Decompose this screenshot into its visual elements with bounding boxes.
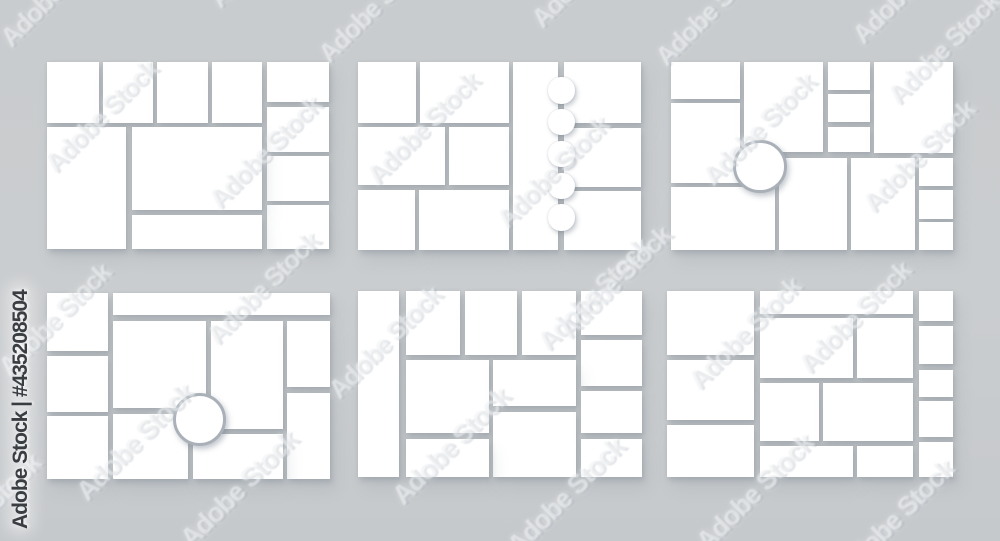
- svg-text:Adobe Stock: Adobe Stock: [525, 0, 650, 33]
- svg-text:Adobe Stock: Adobe Stock: [849, 0, 974, 50]
- svg-text:Adobe Stock: Adobe Stock: [0, 0, 123, 53]
- svg-text:Adobe Stock: Adobe Stock: [0, 0, 120, 52]
- svg-text:Adobe Stock: Adobe Stock: [649, 0, 774, 71]
- svg-text:Adobe Stock: Adobe Stock: [203, 0, 328, 13]
- svg-text:Adobe Stock: Adobe Stock: [526, 0, 651, 33]
- svg-text:Adobe Stock: Adobe Stock: [528, 0, 653, 34]
- svg-text:Adobe Stock: Adobe Stock: [313, 0, 438, 68]
- svg-text:Adobe Stock: Adobe Stock: [846, 0, 971, 49]
- svg-text:Adobe Stock: Adobe Stock: [847, 0, 972, 49]
- svg-text:Adobe Stock: Adobe Stock: [204, 0, 329, 13]
- svg-text:Adobe Stock: Adobe Stock: [0, 0, 121, 52]
- svg-text:Adobe Stock: Adobe Stock: [312, 0, 437, 68]
- svg-text:Adobe Stock: Adobe Stock: [315, 0, 440, 69]
- svg-text:Adobe Stock: Adobe Stock: [206, 0, 331, 14]
